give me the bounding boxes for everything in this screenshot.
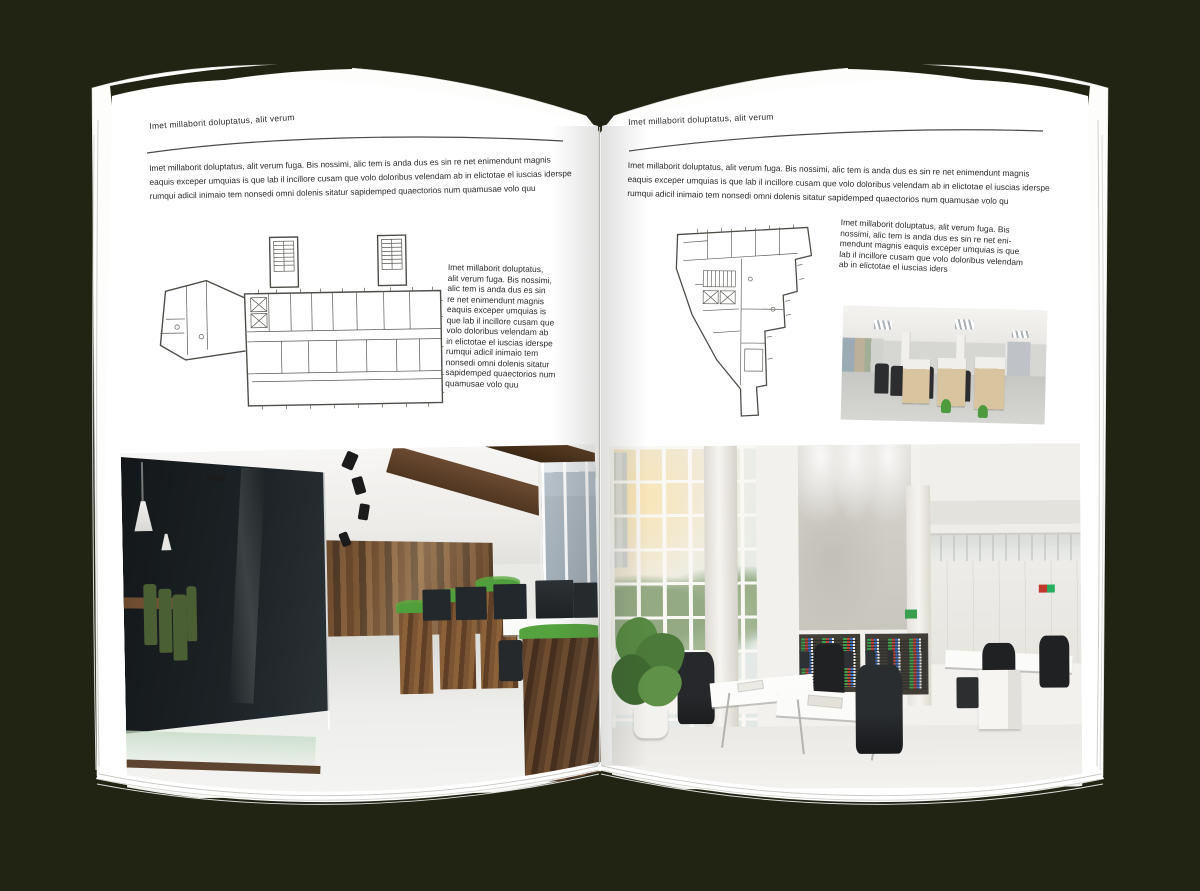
office-chair <box>1039 636 1070 688</box>
cubicle-cabinet <box>974 357 1006 410</box>
spine-top-notch <box>584 113 616 133</box>
pendant-lamp <box>134 501 153 532</box>
green-chair <box>144 584 157 645</box>
wood-planter <box>399 610 434 694</box>
glass-meeting-room <box>121 453 330 734</box>
left-page-side-text: Imet millaborit doluptatus,alit verum fu… <box>445 262 558 390</box>
green-chair <box>172 594 188 661</box>
desk-cabinet <box>978 670 1021 729</box>
safety-signs <box>1038 584 1054 592</box>
magazine-mockup-stage: Imet millaborit doluptatus, alit verum I… <box>0 0 1200 891</box>
monitor <box>574 583 598 618</box>
right-floor-plan <box>644 218 841 423</box>
right-page-header: Imet millaborit doluptatus, alit verum <box>628 111 774 127</box>
plant-pot <box>634 707 668 739</box>
office-chair <box>874 363 889 393</box>
front-wood-planter <box>522 635 601 782</box>
plant <box>977 405 988 419</box>
concrete-wall <box>798 445 912 631</box>
plant <box>941 399 952 413</box>
ceiling-light <box>955 320 974 330</box>
exit-sign <box>905 609 917 618</box>
cubicle-cabinet <box>902 359 930 403</box>
photo-office-atrium <box>610 443 1082 789</box>
green-chair <box>158 589 172 653</box>
right-page-intro: Imet millaborit doluptatus, alit verum f… <box>627 158 1050 209</box>
page-curl-gap-right <box>848 63 1090 106</box>
left-floor-plan <box>149 224 444 413</box>
waste-bin <box>957 677 978 708</box>
glass-reflection <box>229 468 265 704</box>
photo-office-dark-wood <box>121 444 602 799</box>
left-page-header: Imet millaborit doluptatus, alit verum <box>149 112 295 131</box>
potted-plant <box>611 618 692 742</box>
planter-grass <box>519 623 601 639</box>
office-chair <box>856 664 904 753</box>
monitor <box>493 584 527 619</box>
right-page-side-text: Imet millaborit doluptatus, alit verum f… <box>839 217 1025 278</box>
monitor <box>536 580 575 619</box>
monitor <box>422 589 451 621</box>
ceiling-light <box>1012 330 1029 338</box>
right-header-rule <box>629 130 1043 151</box>
green-chair <box>186 586 197 642</box>
page-curl-gap-left <box>110 63 352 106</box>
pendant-lamp <box>161 534 172 551</box>
left-header-rule <box>147 137 563 153</box>
left-page-intro: Imet millaborit doluptatus, alit verum f… <box>149 152 572 203</box>
ceiling-light <box>873 320 892 330</box>
cubicle-cabinet <box>937 358 967 407</box>
monitor <box>455 587 486 620</box>
door <box>1005 341 1030 378</box>
lamp-cord <box>141 462 143 501</box>
office-chair <box>499 640 523 682</box>
photo-office-cubicles <box>841 306 1048 425</box>
